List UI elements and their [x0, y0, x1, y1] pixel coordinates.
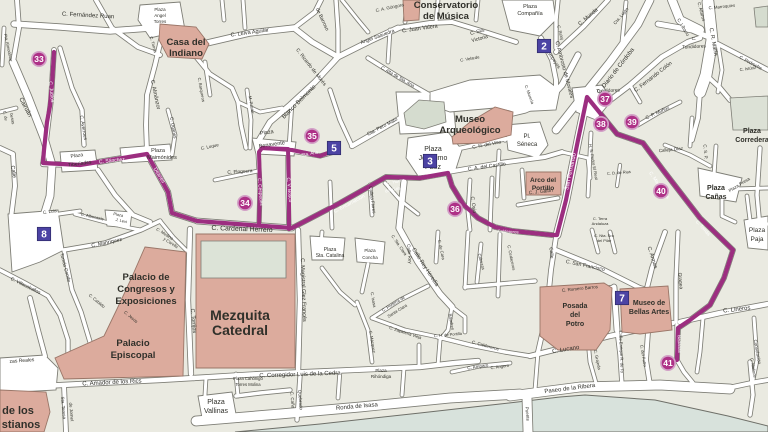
svg-text:Arco del: Arco del	[530, 177, 556, 184]
svg-text:Catedral: Catedral	[212, 322, 268, 338]
svg-text:Arqueológico: Arqueológico	[439, 125, 500, 136]
svg-text:Plaza: Plaza	[749, 227, 766, 234]
svg-text:de los: de los	[2, 405, 34, 417]
svg-text:Indiano: Indiano	[169, 48, 203, 59]
svg-text:Plaza: Plaza	[364, 248, 376, 253]
svg-text:Badanas: Badanas	[677, 335, 683, 354]
svg-text:41: 41	[663, 358, 673, 368]
svg-text:33: 33	[34, 54, 44, 64]
svg-text:Maimónides: Maimónides	[147, 155, 177, 161]
svg-text:38: 38	[596, 119, 606, 129]
svg-text:Cañas: Cañas	[705, 194, 726, 201]
svg-text:Plaza: Plaza	[207, 399, 225, 406]
svg-text:Plaza: Plaza	[707, 185, 725, 192]
svg-text:36: 36	[450, 204, 460, 214]
svg-text:2: 2	[541, 42, 547, 53]
svg-text:39: 39	[627, 117, 637, 127]
svg-text:Andaluza: Andaluza	[592, 221, 609, 226]
svg-text:37: 37	[600, 94, 610, 104]
svg-text:del: del	[570, 312, 580, 319]
svg-text:Paja: Paja	[750, 236, 763, 243]
svg-text:Torres Molina: Torres Molina	[235, 382, 261, 387]
svg-text:Mezquita: Mezquita	[210, 307, 270, 323]
svg-text:Museo de: Museo de	[633, 300, 665, 307]
svg-text:Bellas Artes: Bellas Artes	[629, 309, 669, 316]
svg-text:Plaza: Plaza	[523, 4, 538, 10]
svg-text:Rihóndiga: Rihóndiga	[371, 374, 392, 379]
svg-text:Séneca: Séneca	[517, 142, 538, 148]
svg-text:Plaza: Plaza	[743, 128, 761, 135]
svg-text:Plaza: Plaza	[375, 368, 387, 373]
svg-text:Episcopal: Episcopal	[111, 350, 156, 361]
svg-text:Posada: Posada	[563, 303, 588, 310]
svg-text:Conservatorio: Conservatorio	[414, 0, 479, 11]
svg-text:Congresos y: Congresos y	[117, 284, 175, 295]
svg-text:3: 3	[427, 157, 433, 168]
svg-text:7: 7	[619, 294, 625, 305]
svg-text:Plaza: Plaza	[151, 148, 166, 154]
svg-text:del Pilar: del Pilar	[597, 238, 612, 243]
svg-text:de Música: de Música	[423, 11, 470, 22]
svg-text:Pl.: Pl.	[523, 134, 530, 140]
svg-text:C.: C.	[692, 36, 697, 42]
svg-text:Concha: Concha	[362, 255, 378, 260]
svg-text:Angel: Angel	[154, 13, 166, 18]
svg-text:Palacio de: Palacio de	[123, 272, 170, 283]
svg-text:Compañía: Compañía	[517, 11, 543, 17]
svg-text:Torres: Torres	[154, 19, 167, 24]
svg-text:5: 5	[331, 144, 337, 155]
svg-text:Plaza: Plaza	[154, 7, 166, 12]
svg-text:34: 34	[240, 198, 250, 208]
svg-text:Vallinas: Vallinas	[204, 408, 228, 415]
svg-text:35: 35	[307, 131, 317, 141]
svg-text:Museo: Museo	[455, 114, 485, 125]
svg-text:Corredera: Corredera	[735, 137, 768, 144]
svg-text:Exposiciones: Exposiciones	[115, 296, 176, 307]
svg-text:8: 8	[41, 230, 47, 241]
svg-text:Calle: Calle	[548, 247, 555, 259]
svg-text:Potro: Potro	[566, 321, 584, 328]
svg-text:Palacio: Palacio	[116, 338, 149, 349]
svg-text:Casa del: Casa del	[166, 37, 205, 48]
svg-text:Sta. Catalina: Sta. Catalina	[316, 253, 345, 259]
svg-text:stianos: stianos	[2, 419, 41, 431]
svg-text:Plaza: Plaza	[424, 146, 442, 153]
svg-text:40: 40	[656, 186, 666, 196]
